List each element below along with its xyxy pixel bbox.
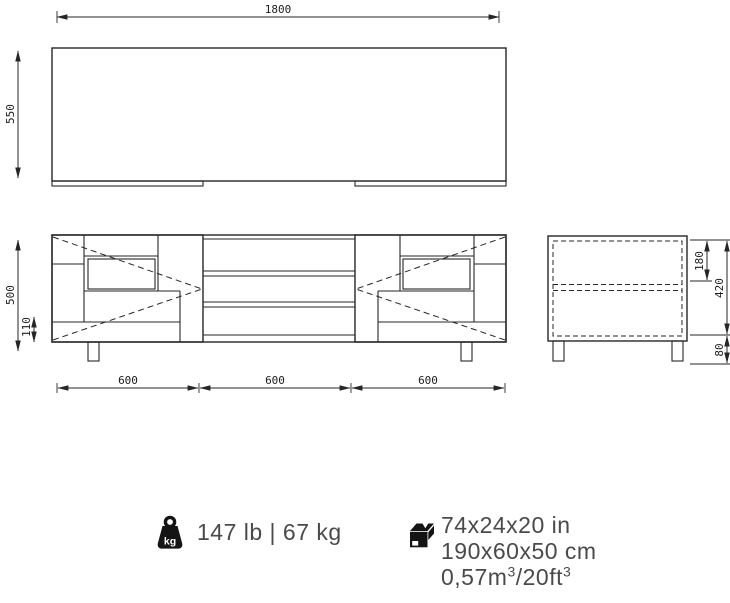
middle-shelf-lines bbox=[203, 239, 355, 335]
technical-drawing: 1800 550 500 110 bbox=[0, 0, 730, 430]
dim-label-1800: 1800 bbox=[265, 3, 292, 16]
dim-label-110: 110 bbox=[20, 317, 33, 337]
side-back-leg bbox=[672, 341, 683, 361]
side-hidden-shelf bbox=[553, 285, 682, 291]
top-view-right-door-edge bbox=[355, 181, 506, 186]
side-hidden-carcass bbox=[553, 241, 682, 336]
front-view bbox=[52, 235, 506, 361]
dim-front-height: 500 bbox=[4, 240, 18, 351]
side-body bbox=[548, 236, 687, 341]
left-door-inner-panel bbox=[88, 259, 155, 289]
package-info: 74x24x20 in 190x60x50 cm 0,57m3/20ft3 bbox=[441, 512, 597, 590]
package-size-in: 74x24x20 in bbox=[441, 512, 597, 538]
front-right-leg bbox=[461, 342, 472, 361]
dim-label-420: 420 bbox=[713, 278, 726, 298]
top-view bbox=[52, 48, 506, 186]
package-size-cm: 190x60x50 cm bbox=[441, 538, 597, 564]
dim-label-500: 500 bbox=[4, 285, 17, 305]
dim-label-550: 550 bbox=[4, 104, 17, 124]
dim-top-width: 1800 bbox=[57, 3, 499, 23]
furniture-spec-sheet: 1800 550 500 110 bbox=[0, 0, 730, 603]
front-left-leg bbox=[88, 342, 99, 361]
package-volume: 0,57m3/20ft3 bbox=[441, 564, 597, 590]
top-view-left-door-edge bbox=[52, 181, 203, 186]
side-view bbox=[548, 236, 687, 361]
dim-top-depth: 550 bbox=[4, 51, 18, 178]
dim-label-600-middle: 600 bbox=[265, 374, 285, 387]
dim-label-600-left: 600 bbox=[118, 374, 138, 387]
top-view-body bbox=[52, 48, 506, 181]
dim-label-80: 80 bbox=[713, 343, 726, 356]
side-front-leg bbox=[553, 341, 564, 361]
weight-label: 147 lb | 67 kg bbox=[197, 519, 342, 546]
dim-side: 180 420 80 bbox=[690, 240, 730, 364]
kg-mark: kg bbox=[164, 536, 176, 548]
dim-label-180: 180 bbox=[693, 251, 706, 271]
kettlebell-kg-icon: kg bbox=[155, 515, 185, 551]
dim-front-plinth: 110 bbox=[20, 317, 34, 342]
dim-label-600-right: 600 bbox=[418, 374, 438, 387]
cardboard-box-icon bbox=[408, 520, 438, 550]
right-door-inner-panel bbox=[403, 259, 470, 289]
dim-front-segments: 600 600 600 bbox=[57, 374, 505, 393]
